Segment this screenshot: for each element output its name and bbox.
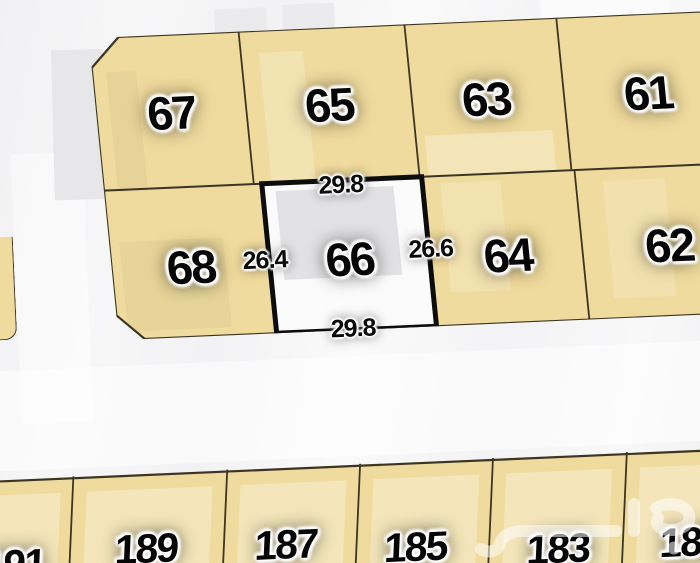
- upper-parcel-block: 67 65 63 61 68 66 64 62: [89, 10, 700, 340]
- parcel-label-68: 68: [164, 242, 217, 291]
- parcel-label-65: 65: [303, 80, 356, 129]
- dimension-label-bottom: 29.8: [330, 315, 376, 342]
- logo-stroke-jeem: [656, 504, 689, 530]
- footprint-63: [425, 130, 557, 177]
- parcel-map-screenshot: 67 65 63 61 68 66 64 62 29.8 29.8 26.4 2…: [0, 0, 700, 563]
- parcel-label-187: 187: [254, 523, 318, 563]
- parcel-label-62: 62: [643, 221, 696, 270]
- parcel-label-63: 63: [460, 74, 513, 123]
- parcel-label-191: 191: [0, 543, 46, 563]
- logo-stroke-bar: [481, 531, 616, 551]
- parcel-label-67: 67: [145, 88, 198, 137]
- parcel-label-189: 189: [114, 527, 178, 563]
- logo-dot: [668, 542, 681, 555]
- map-scene: 67 65 63 61 68 66 64 62 29.8 29.8 26.4 2…: [0, 0, 700, 563]
- parcel-label-64: 64: [481, 231, 534, 280]
- parcel-label-61: 61: [622, 68, 675, 117]
- parcel-label-185: 185: [383, 525, 447, 563]
- dimension-label-left: 26.4: [242, 247, 288, 274]
- haraj-logo-icon: [468, 488, 698, 563]
- dimension-label-right: 26.6: [408, 236, 454, 263]
- watermark-logo: [468, 488, 698, 563]
- dimension-label-top: 29.8: [318, 172, 364, 199]
- parcel-label-66: 66: [323, 235, 376, 284]
